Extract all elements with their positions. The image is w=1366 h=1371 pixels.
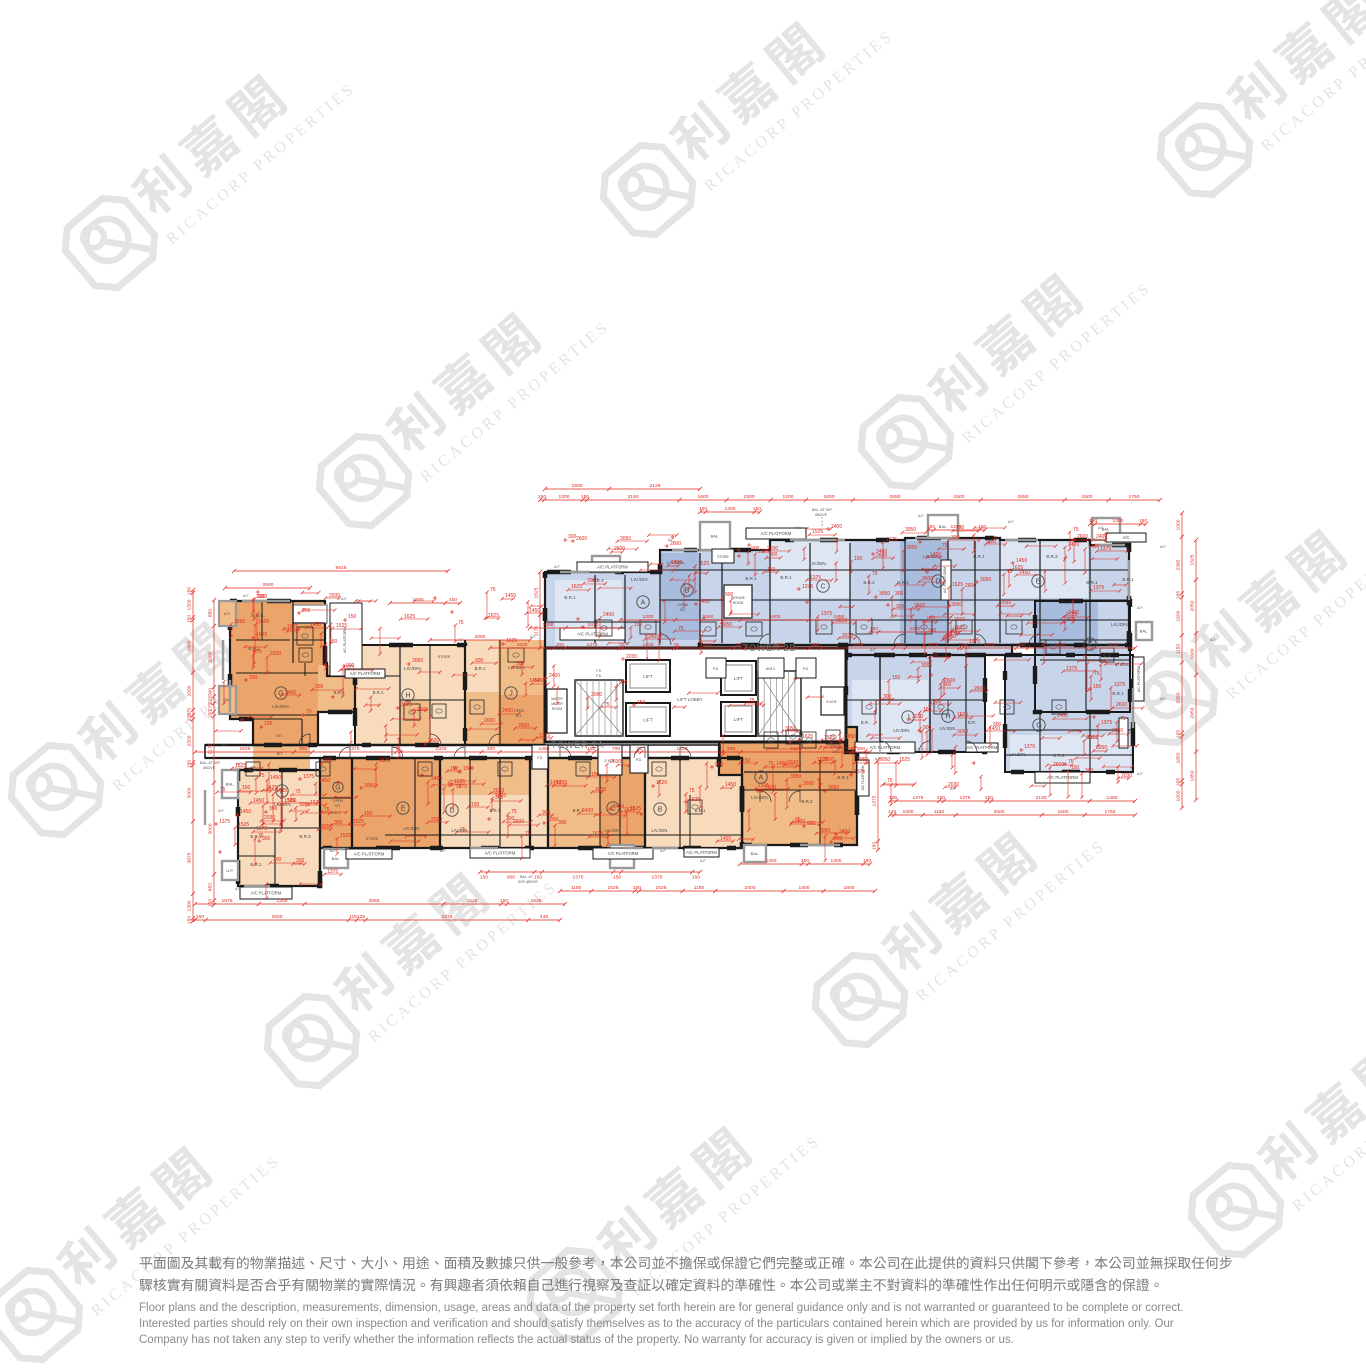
svg-text:A.F.: A.F.	[1160, 697, 1166, 701]
svg-text:LIV./DIN.: LIV./DIN.	[893, 728, 910, 733]
svg-text:1450: 1450	[539, 746, 550, 752]
svg-text:BAL. AT: BAL. AT	[520, 875, 533, 879]
svg-text:900: 900	[927, 616, 936, 622]
svg-text:E: E	[1036, 579, 1041, 586]
svg-text:LIV./DIN.: LIV./DIN.	[631, 577, 649, 582]
svg-text:900: 900	[725, 592, 734, 598]
svg-text:1375: 1375	[456, 784, 467, 790]
svg-text:3050: 3050	[951, 602, 962, 608]
svg-text:150: 150	[692, 875, 700, 881]
svg-text:150: 150	[500, 898, 508, 904]
svg-text:1850: 1850	[1190, 770, 1196, 781]
svg-text:900: 900	[507, 875, 515, 881]
svg-text:2800: 2800	[187, 640, 193, 651]
svg-text:1375: 1375	[1114, 682, 1125, 688]
svg-text:75: 75	[490, 587, 496, 593]
svg-text:E.M.R.: E.M.R.	[827, 700, 838, 704]
svg-text:A.F.: A.F.	[870, 648, 876, 652]
svg-text:150: 150	[801, 858, 809, 864]
svg-text:300: 300	[1018, 642, 1026, 648]
svg-text:1625: 1625	[571, 584, 582, 590]
svg-text:2600: 2600	[518, 723, 529, 729]
svg-text:150: 150	[892, 675, 901, 681]
svg-text:B.R.1: B.R.1	[490, 808, 501, 813]
svg-text:3650: 3650	[369, 898, 380, 904]
svg-text:3875: 3875	[187, 852, 193, 863]
svg-text:2125: 2125	[650, 483, 661, 489]
svg-text:150: 150	[249, 675, 258, 681]
svg-text:150: 150	[1093, 684, 1102, 690]
svg-text:150: 150	[633, 885, 641, 891]
svg-text:LIFT LOBBY: LIFT LOBBY	[677, 697, 702, 702]
svg-text:100: 100	[587, 746, 595, 752]
svg-text:75: 75	[460, 827, 466, 833]
svg-text:1625: 1625	[517, 642, 528, 648]
svg-text:900: 900	[346, 663, 355, 669]
svg-text:1500: 1500	[1082, 494, 1093, 500]
svg-text:KIT.: KIT.	[335, 804, 341, 808]
svg-text:275: 275	[208, 703, 214, 711]
svg-text:75: 75	[324, 807, 330, 813]
svg-text:1450: 1450	[240, 809, 251, 815]
svg-text:B.R.2: B.R.2	[373, 690, 384, 695]
svg-text:LIFT: LIFT	[734, 717, 744, 722]
svg-text:3050: 3050	[906, 545, 917, 551]
svg-text:BAL.: BAL.	[751, 851, 760, 856]
svg-text:2600: 2600	[914, 603, 925, 609]
svg-text:1375: 1375	[1093, 585, 1104, 591]
svg-text:3050: 3050	[845, 734, 856, 740]
svg-text:1300: 1300	[910, 626, 921, 632]
svg-text:1525: 1525	[608, 885, 619, 891]
svg-text:1375: 1375	[587, 642, 598, 648]
svg-text:A/C PLATFORM: A/C PLATFORM	[761, 531, 792, 536]
svg-text:145: 145	[888, 809, 896, 815]
svg-text:2030: 2030	[1000, 600, 1011, 606]
svg-text:A/C PLATFORM: A/C PLATFORM	[1137, 666, 1141, 692]
svg-text:1500: 1500	[572, 483, 583, 489]
svg-text:B.R.1: B.R.1	[1122, 577, 1134, 582]
svg-text:B.R.2: B.R.2	[1053, 753, 1065, 758]
svg-text:C: C	[820, 584, 825, 591]
svg-text:300: 300	[857, 746, 865, 752]
svg-text:3050: 3050	[587, 578, 598, 584]
svg-text:2030: 2030	[842, 633, 853, 639]
svg-text:U.P.: U.P.	[224, 612, 231, 616]
svg-text:1200: 1200	[783, 494, 794, 500]
svg-text:1450: 1450	[930, 552, 941, 558]
svg-text:75: 75	[258, 833, 264, 839]
svg-text:LIFT: LIFT	[643, 674, 653, 679]
svg-text:1375: 1375	[327, 869, 338, 875]
svg-text:H: H	[945, 714, 950, 721]
svg-text:平面圖及其載有的物業描述、尺寸、大小、用途、面積及數據只供一: 平面圖及其載有的物業描述、尺寸、大小、用途、面積及數據只供一般參考，本公司並不擔…	[139, 1255, 1233, 1271]
svg-text:1625: 1625	[488, 613, 499, 619]
svg-text:A.F.: A.F.	[554, 565, 560, 569]
svg-text:3050: 3050	[828, 785, 839, 791]
svg-text:B.R.3: B.R.3	[299, 834, 311, 839]
svg-text:150: 150	[187, 760, 193, 768]
svg-text:75: 75	[511, 809, 517, 815]
svg-text:A/C PLATFORM: A/C PLATFORM	[686, 850, 717, 855]
svg-text:300: 300	[896, 604, 905, 610]
svg-text:150: 150	[538, 494, 546, 500]
svg-text:A/C PLATFORM: A/C PLATFORM	[350, 671, 381, 676]
svg-text:3050: 3050	[980, 577, 991, 583]
svg-text:1625: 1625	[1012, 565, 1023, 571]
svg-text:1600: 1600	[770, 614, 781, 620]
svg-text:2600: 2600	[484, 718, 495, 724]
svg-text:300: 300	[487, 746, 495, 752]
svg-text:150: 150	[471, 802, 480, 808]
svg-text:1600: 1600	[1176, 610, 1182, 621]
svg-text:300: 300	[269, 806, 278, 812]
svg-text:1675: 1675	[222, 898, 233, 904]
svg-text:300: 300	[334, 820, 343, 826]
svg-text:165: 165	[1176, 591, 1182, 599]
svg-text:75: 75	[795, 817, 801, 823]
svg-text:1400: 1400	[799, 885, 810, 891]
svg-text:75: 75	[1082, 655, 1088, 661]
svg-text:75: 75	[1120, 716, 1126, 722]
svg-text:1375: 1375	[1066, 666, 1077, 672]
svg-text:LIFT: LIFT	[734, 676, 744, 681]
svg-text:F: F	[1088, 642, 1092, 649]
svg-text:150: 150	[257, 594, 266, 600]
svg-text:B.R.1: B.R.1	[564, 595, 576, 600]
svg-text:300: 300	[951, 535, 960, 541]
svg-text:2600: 2600	[954, 617, 965, 623]
svg-text:M.B.R.: M.B.R.	[251, 613, 265, 618]
svg-text:LIV./DIN.: LIV./DIN.	[1111, 622, 1129, 627]
svg-text:1375: 1375	[256, 826, 267, 832]
svg-text:B.R.1: B.R.1	[1112, 691, 1124, 696]
svg-text:150: 150	[634, 622, 643, 628]
svg-text:2400: 2400	[502, 708, 513, 714]
svg-text:A/C PLATFORM: A/C PLATFORM	[608, 851, 639, 856]
svg-text:1375: 1375	[1024, 744, 1035, 750]
svg-text:1525: 1525	[310, 800, 321, 806]
svg-text:1525: 1525	[467, 898, 478, 904]
svg-text:1800: 1800	[844, 885, 855, 891]
svg-text:1500: 1500	[744, 494, 755, 500]
svg-text:2400: 2400	[603, 612, 614, 618]
svg-text:2600: 2600	[576, 536, 587, 542]
svg-text:900: 900	[475, 658, 484, 664]
svg-text:1625: 1625	[235, 763, 246, 769]
svg-text:3050: 3050	[412, 658, 423, 664]
svg-text:75: 75	[958, 642, 964, 648]
svg-text:A.F.: A.F.	[341, 597, 347, 601]
svg-text:150: 150	[699, 506, 707, 512]
svg-text:3000: 3000	[208, 823, 214, 834]
svg-text:165: 165	[1176, 730, 1182, 738]
svg-text:2950: 2950	[1190, 707, 1196, 718]
svg-text:KIT.: KIT.	[277, 733, 284, 738]
svg-text:B.R.2: B.R.2	[897, 580, 909, 585]
svg-text:2850: 2850	[1018, 494, 1029, 500]
svg-text:300: 300	[933, 699, 942, 705]
svg-text:2430: 2430	[588, 622, 599, 628]
svg-text:2400: 2400	[582, 808, 593, 814]
svg-text:75: 75	[636, 746, 642, 752]
svg-text:F.S.: F.S.	[596, 669, 602, 673]
svg-text:3150: 3150	[628, 494, 639, 500]
svg-text:1450: 1450	[310, 622, 321, 628]
svg-text:75: 75	[525, 831, 531, 837]
svg-text:1525: 1525	[671, 560, 682, 566]
svg-text:150: 150	[978, 524, 986, 530]
svg-text:1625: 1625	[802, 734, 813, 740]
svg-text:2400: 2400	[831, 524, 842, 530]
svg-text:A/C PLATFORM: A/C PLATFORM	[485, 851, 516, 856]
svg-text:BAL. AT 32/F: BAL. AT 32/F	[812, 508, 833, 512]
svg-text:B: B	[658, 807, 663, 814]
svg-text:3050: 3050	[595, 787, 606, 793]
svg-text:ABOVE: ABOVE	[815, 513, 828, 517]
svg-text:1375: 1375	[573, 875, 584, 881]
svg-text:1600: 1600	[698, 494, 709, 500]
svg-text:150: 150	[863, 858, 871, 864]
svg-text:B.R.1: B.R.1	[695, 808, 706, 813]
svg-text:2000: 2000	[208, 651, 214, 662]
svg-text:75: 75	[447, 783, 453, 789]
svg-text:1750: 1750	[1105, 809, 1116, 815]
svg-text:2600: 2600	[876, 553, 887, 559]
svg-text:1450: 1450	[529, 608, 540, 614]
svg-text:1375: 1375	[960, 795, 971, 801]
svg-text:3000: 3000	[187, 787, 193, 798]
svg-text:3050: 3050	[721, 622, 732, 628]
svg-text:KIT.: KIT.	[680, 608, 686, 612]
svg-text:BAL. AT 32/F: BAL. AT 32/F	[200, 761, 221, 765]
svg-text:1450: 1450	[556, 780, 567, 786]
svg-text:Company has not taken any step: Company has not taken any step to verify…	[139, 1334, 1014, 1346]
svg-text:150: 150	[208, 710, 214, 718]
svg-text:75: 75	[306, 709, 312, 715]
svg-text:B.R.2: B.R.2	[1046, 554, 1058, 559]
svg-text:1200: 1200	[277, 898, 288, 904]
svg-text:75: 75	[887, 778, 893, 784]
svg-text:1300: 1300	[831, 858, 842, 864]
svg-text:1450: 1450	[725, 782, 736, 788]
svg-text:A.F.: A.F.	[1160, 545, 1166, 549]
svg-text:150: 150	[187, 587, 193, 595]
svg-text:75: 75	[220, 787, 226, 793]
svg-text:1625: 1625	[952, 582, 963, 588]
svg-text:75: 75	[872, 571, 878, 577]
svg-text:1625: 1625	[592, 831, 603, 837]
svg-text:A.F.: A.F.	[218, 809, 224, 813]
svg-text:1525: 1525	[1190, 554, 1196, 565]
svg-text:1100: 1100	[1108, 642, 1119, 648]
svg-text:1450: 1450	[720, 836, 731, 842]
svg-text:驟核實有關資料是否合乎有關物業的實際情況。有興趣者須依賴自己: 驟核實有關資料是否合乎有關物業的實際情況。有興趣者須依賴自己進行視察及查証以確定…	[139, 1277, 1163, 1293]
svg-text:1175: 1175	[534, 625, 540, 636]
svg-text:2850: 2850	[890, 494, 901, 500]
svg-text:1450: 1450	[945, 634, 956, 640]
svg-text:3050: 3050	[790, 774, 801, 780]
svg-text:2400: 2400	[549, 673, 560, 679]
svg-text:150: 150	[187, 916, 193, 924]
svg-text:1375: 1375	[854, 769, 865, 775]
svg-text:3050: 3050	[879, 591, 890, 597]
svg-text:G: G	[1036, 723, 1041, 730]
svg-text:B.R.1: B.R.1	[475, 666, 486, 671]
svg-text:1690: 1690	[413, 597, 424, 603]
svg-text:900: 900	[923, 725, 932, 731]
svg-text:75: 75	[1073, 527, 1079, 533]
svg-text:1150: 1150	[1176, 643, 1182, 654]
svg-text:300: 300	[516, 661, 525, 667]
svg-text:2400: 2400	[745, 885, 756, 891]
svg-text:445: 445	[540, 914, 548, 920]
svg-text:2050: 2050	[1190, 600, 1196, 611]
svg-text:B.R.: B.R.	[861, 720, 869, 725]
svg-text:2950: 2950	[1176, 692, 1182, 703]
svg-text:LIV./DIN.: LIV./DIN.	[809, 561, 827, 566]
svg-text:1525: 1525	[238, 822, 249, 828]
svg-text:2030: 2030	[610, 759, 621, 765]
svg-text:J: J	[509, 691, 513, 698]
svg-text:LIV./DIN.: LIV./DIN.	[604, 828, 621, 833]
svg-text:150: 150	[613, 875, 621, 881]
svg-text:P.D.: P.D.	[636, 758, 642, 762]
svg-text:KIT.: KIT.	[277, 752, 284, 756]
svg-text:1375: 1375	[913, 795, 924, 801]
svg-text:BAL.: BAL.	[939, 524, 948, 529]
svg-text:2400: 2400	[648, 634, 659, 640]
svg-text:2030: 2030	[264, 815, 275, 821]
svg-text:1325: 1325	[436, 746, 447, 752]
svg-text:P.D.: P.D.	[713, 667, 719, 671]
svg-text:2600: 2600	[787, 760, 798, 766]
svg-text:2385: 2385	[1176, 559, 1182, 570]
svg-text:1525: 1525	[340, 833, 351, 839]
svg-text:150: 150	[767, 567, 776, 573]
svg-text:1375: 1375	[1100, 546, 1111, 552]
svg-text:75: 75	[678, 626, 684, 632]
svg-text:P.D.: P.D.	[803, 667, 809, 671]
svg-text:1450: 1450	[701, 642, 712, 648]
svg-text:1450: 1450	[766, 858, 777, 864]
svg-text:300: 300	[895, 591, 904, 597]
svg-text:1625: 1625	[256, 632, 267, 638]
svg-text:KIT.: KIT.	[516, 714, 522, 718]
svg-text:1625: 1625	[689, 797, 700, 803]
svg-text:150: 150	[591, 772, 600, 778]
svg-text:A/C PLATFORM: A/C PLATFORM	[597, 565, 628, 570]
svg-text:1525: 1525	[656, 885, 667, 891]
svg-text:1450: 1450	[505, 593, 516, 599]
svg-text:75: 75	[673, 642, 679, 648]
svg-text:150: 150	[264, 721, 273, 727]
svg-text:150: 150	[988, 539, 997, 545]
svg-text:225: 225	[208, 696, 214, 704]
svg-text:900: 900	[619, 680, 628, 686]
svg-text:32/F ABOVE: 32/F ABOVE	[518, 880, 539, 884]
svg-text:1625: 1625	[240, 746, 251, 752]
svg-text:1525: 1525	[379, 758, 390, 764]
svg-text:300: 300	[556, 642, 564, 648]
svg-text:1625: 1625	[817, 757, 828, 763]
svg-text:1375: 1375	[539, 733, 550, 739]
svg-text:1150: 1150	[934, 809, 945, 815]
svg-text:Floor plans and the descriptio: Floor plans and the description, measure…	[139, 1302, 1184, 1314]
svg-text:3000: 3000	[994, 809, 1005, 815]
svg-text:A/C PLATFORM: A/C PLATFORM	[1047, 775, 1078, 780]
svg-text:1500: 1500	[1058, 809, 1069, 815]
svg-text:1450: 1450	[1107, 795, 1118, 801]
svg-text:900: 900	[769, 552, 778, 558]
svg-text:150: 150	[872, 842, 878, 850]
svg-text:BAL.: BAL.	[226, 782, 235, 787]
svg-text:1850: 1850	[1176, 752, 1182, 763]
svg-text:1375: 1375	[802, 584, 813, 590]
svg-text:2030: 2030	[329, 593, 340, 599]
svg-text:900: 900	[288, 798, 297, 804]
svg-text:300: 300	[883, 694, 892, 700]
svg-text:2600: 2600	[803, 781, 814, 787]
svg-text:STORE: STORE	[366, 837, 379, 841]
svg-text:1450: 1450	[319, 778, 330, 784]
svg-text:195: 195	[889, 795, 897, 801]
svg-text:1375: 1375	[928, 642, 939, 648]
svg-text:A.F.: A.F.	[1137, 772, 1143, 776]
svg-text:150: 150	[1071, 765, 1080, 771]
svg-text:150: 150	[937, 795, 945, 801]
svg-text:1450: 1450	[989, 726, 1000, 732]
svg-text:A.F.: A.F.	[1008, 520, 1014, 524]
svg-text:1000: 1000	[903, 809, 914, 815]
svg-text:1000: 1000	[1176, 519, 1182, 530]
svg-text:OPEN: OPEN	[333, 799, 343, 803]
svg-text:3050: 3050	[547, 817, 558, 823]
svg-text:LIV./DIN.: LIV./DIN.	[1009, 752, 1026, 757]
svg-text:A.F.: A.F.	[918, 514, 924, 518]
svg-text:1525: 1525	[287, 624, 298, 630]
svg-text:3050: 3050	[857, 757, 868, 763]
svg-text:300: 300	[928, 628, 937, 634]
svg-text:2600: 2600	[974, 686, 985, 692]
svg-text:2400: 2400	[1057, 713, 1068, 719]
svg-text:150: 150	[463, 766, 472, 772]
svg-text:3050: 3050	[836, 618, 847, 624]
svg-text:900: 900	[542, 810, 551, 816]
svg-text:ROOM: ROOM	[552, 707, 563, 711]
svg-text:700: 700	[612, 746, 620, 752]
svg-text:75: 75	[295, 789, 301, 795]
svg-text:150: 150	[364, 811, 373, 817]
svg-text:Interested parties should rely: Interested parties should rely on their …	[139, 1318, 1174, 1330]
svg-text:150: 150	[927, 524, 935, 530]
svg-text:B.R.1: B.R.1	[973, 554, 985, 559]
svg-text:3050: 3050	[234, 619, 245, 625]
svg-text:3050: 3050	[785, 726, 796, 732]
svg-text:75: 75	[689, 788, 695, 794]
svg-text:BAL.: BAL.	[1140, 629, 1149, 634]
svg-text:150: 150	[581, 494, 589, 500]
svg-text:2600: 2600	[258, 619, 269, 625]
svg-text:75: 75	[749, 698, 755, 704]
svg-text:STORE: STORE	[438, 655, 451, 659]
svg-text:1850: 1850	[853, 642, 864, 648]
svg-text:300: 300	[834, 836, 843, 842]
svg-text:B.R.2: B.R.2	[801, 799, 813, 804]
svg-text:75: 75	[932, 652, 938, 658]
svg-text:1375: 1375	[872, 795, 878, 806]
svg-text:LIV./DIN.: LIV./DIN.	[939, 726, 956, 731]
